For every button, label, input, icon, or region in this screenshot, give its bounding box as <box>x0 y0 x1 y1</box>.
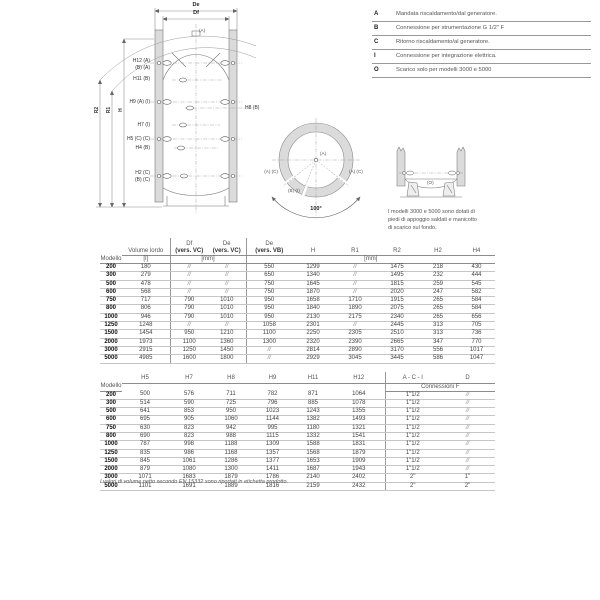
value-cell: 1909 <box>333 457 385 465</box>
value-cell: 590 <box>168 399 210 407</box>
value-cell: // <box>440 457 495 465</box>
model-cell: 600 <box>100 416 122 424</box>
value-cell: 1645 <box>292 280 334 288</box>
feet-note-line: piedi di appoggio saldati e manicotto <box>388 216 498 224</box>
datasheet-page: De Df (A) H12 (A) (B) (A) H11 (B) H9 (A)… <box>0 0 600 600</box>
value-cell: // <box>208 264 246 272</box>
col-header-de-vc: De(vers. VC) <box>208 238 246 256</box>
dimensions-table-1: Modello Volume lordo Df(vers. VC) De(ver… <box>100 238 495 364</box>
value-cell: 180 <box>122 264 170 272</box>
table-row: 3000291512501450//2814289031705561017 <box>100 346 495 354</box>
value-cell: 2" <box>440 482 495 490</box>
legend-text: Connessione per integrazione elettrica. <box>396 53 497 59</box>
value-cell: 1300 <box>210 466 252 474</box>
value-cell: 988 <box>210 432 252 440</box>
feet-note: I modelli 3000 e 5000 sono dotati di pie… <box>388 208 498 232</box>
value-cell: // <box>170 280 208 288</box>
label-h12: H12 (A) <box>133 58 150 64</box>
value-cell: 853 <box>168 408 210 416</box>
value-cell: 630 <box>122 424 168 432</box>
value-cell: 218 <box>418 264 458 272</box>
value-cell: 1100 <box>170 338 208 346</box>
value-cell: 1023 <box>252 408 293 416</box>
value-cell: 2402 <box>333 474 385 482</box>
value-cell: 1309 <box>252 441 293 449</box>
col-header-h5: H5 <box>122 372 168 383</box>
col-header-h8: H8 <box>210 372 252 383</box>
value-cell: 1"1/2 <box>385 449 440 457</box>
model-cell: 200 <box>100 391 122 399</box>
value-cell: 1360 <box>208 338 246 346</box>
table-row: 300279////6501340//1495232444 <box>100 272 495 280</box>
value-cell: 995 <box>252 424 293 432</box>
topview-label-left: (A) (C) <box>264 169 278 175</box>
value-cell: // <box>208 288 246 296</box>
value-cell: 1080 <box>168 466 210 474</box>
value-cell: // <box>440 391 495 399</box>
col-header-de-vb: De(vers. VB) <box>246 238 292 256</box>
value-cell: 1815 <box>376 280 418 288</box>
label-h2: H2 (C) <box>135 170 150 176</box>
label-h11: H11 (B) <box>133 76 150 82</box>
value-cell: 2890 <box>334 346 376 354</box>
value-cell: 1115 <box>252 432 293 440</box>
value-cell: 2075 <box>376 305 418 313</box>
table-footnote: I valori di volume netto secondo EN 1533… <box>100 479 288 485</box>
value-cell: 1943 <box>333 466 385 474</box>
value-cell: 1"1/2 <box>385 457 440 465</box>
value-cell: 871 <box>293 391 333 399</box>
value-cell: 584 <box>458 297 495 305</box>
table-row: 8006908239881115133215411"1/2// <box>100 432 495 440</box>
value-cell: 2175 <box>334 313 376 321</box>
dim-label-h: H <box>118 108 124 112</box>
legend-key: O <box>374 67 396 73</box>
model-cell: 1500 <box>100 457 122 465</box>
value-cell: 641 <box>122 408 168 416</box>
value-cell: 550 <box>246 264 292 272</box>
col-header-h12: H12 <box>333 372 385 383</box>
value-cell: // <box>440 466 495 474</box>
value-cell: 1047 <box>458 355 495 363</box>
col-header-r2: R2 <box>376 238 418 256</box>
value-cell: 1541 <box>333 432 385 440</box>
model-cell: 1250 <box>100 322 122 330</box>
topview-label-a: (A) <box>320 151 326 157</box>
legend-item: B Connessione per strumentazione G 1/2" … <box>372 22 591 36</box>
value-cell: 1010 <box>208 297 246 305</box>
table-row: 8008067901010950184018902075265584 <box>100 305 495 313</box>
value-cell: 1653 <box>293 457 333 465</box>
value-cell: 1600 <box>170 355 208 363</box>
value-cell: 1710 <box>334 297 376 305</box>
model-cell: 300 <box>100 272 122 280</box>
value-cell: 787 <box>122 441 168 449</box>
value-cell: 1495 <box>376 272 418 280</box>
col-header-h2: H2 <box>418 238 458 256</box>
label-h7: H7 (I) <box>138 122 151 128</box>
value-cell: 750 <box>246 280 292 288</box>
value-cell: // <box>440 416 495 424</box>
value-cell: // <box>170 322 208 330</box>
label-h5: H5 (C) (C) <box>127 136 150 142</box>
legend-key: B <box>374 25 396 31</box>
value-cell: 705 <box>458 322 495 330</box>
value-cell: 3045 <box>334 355 376 363</box>
value-cell: 1"1/2 <box>385 424 440 432</box>
value-cell: 2320 <box>292 338 334 346</box>
value-cell: 2159 <box>293 482 333 490</box>
value-cell: 1061 <box>168 457 210 465</box>
value-cell: // <box>170 288 208 296</box>
value-cell: 1332 <box>293 432 333 440</box>
value-cell: 232 <box>418 272 458 280</box>
value-cell: 1475 <box>376 264 418 272</box>
legend-text: Mandata riscaldamento/dal generatore. <box>396 11 497 17</box>
value-cell: // <box>334 264 376 272</box>
label-h12b: (B) (A) <box>135 65 150 71</box>
value-cell: // <box>208 272 246 280</box>
value-cell: // <box>246 346 292 354</box>
value-cell: 1"1/2 <box>385 432 440 440</box>
value-cell: 584 <box>458 305 495 313</box>
feet-note-line: di scarico sul fondo. <box>388 224 498 232</box>
value-cell: 845 <box>122 457 168 465</box>
value-cell: 950 <box>210 408 252 416</box>
value-cell: 1411 <box>252 466 293 474</box>
value-cell: 1"1/2 <box>385 416 440 424</box>
value-cell: 1493 <box>333 416 385 424</box>
value-cell: 1915 <box>376 297 418 305</box>
topview-label-bottom: (B) (I) <box>288 188 300 194</box>
unit-mm: [mm] <box>170 256 246 264</box>
model-cell: 2000 <box>100 338 122 346</box>
value-cell: 998 <box>168 441 210 449</box>
value-cell: 586 <box>418 355 458 363</box>
value-cell: 1250 <box>170 346 208 354</box>
col-header-d: D <box>440 372 495 383</box>
value-cell: 1870 <box>292 288 334 296</box>
model-cell: 750 <box>100 297 122 305</box>
value-cell: 545 <box>458 280 495 288</box>
connections-legend: A Mandata riscaldamento/dal generatore. … <box>372 8 591 78</box>
table-row: 100078799811881309158818311"1/2// <box>100 441 495 449</box>
value-cell: 1340 <box>292 272 334 280</box>
value-cell: 650 <box>246 272 292 280</box>
value-cell: // <box>208 280 246 288</box>
value-cell: 2" <box>385 474 440 482</box>
value-cell: 885 <box>293 399 333 407</box>
value-cell: 1890 <box>334 305 376 313</box>
legend-text: Scarico solo per modelli 3000 e 5000 <box>396 67 491 73</box>
value-cell: 823 <box>168 424 210 432</box>
value-cell: // <box>208 322 246 330</box>
col-header-modello: Modello <box>100 372 122 391</box>
value-cell: 1"1/2 <box>385 466 440 474</box>
model-cell: 1250 <box>100 449 122 457</box>
legend-text: Ritorno riscaldamento/al generatore. <box>396 39 490 45</box>
subheader-connessioni: Connessioni F <box>385 383 495 391</box>
model-cell: 600 <box>100 288 122 296</box>
dimensions-table-2: Modello H5 H7 H8 H9 H11 H12 A - C - I D … <box>100 372 495 491</box>
col-header-h7: H7 <box>168 372 210 383</box>
value-cell: 265 <box>418 305 458 313</box>
value-cell: 2305 <box>334 330 376 338</box>
table-row: 200180////5501299//1475218430 <box>100 264 495 272</box>
value-cell: 1800 <box>208 355 246 363</box>
value-cell: // <box>440 432 495 440</box>
value-cell: 1144 <box>252 416 293 424</box>
value-cell: 656 <box>458 313 495 321</box>
value-cell: 695 <box>122 416 168 424</box>
value-cell: 2" <box>385 482 440 490</box>
value-cell: 1010 <box>208 313 246 321</box>
table-row: 12501248////10582301//2445313705 <box>100 322 495 330</box>
value-cell: 2020 <box>376 288 418 296</box>
unit-liters: [l] <box>122 256 170 264</box>
value-cell: 1180 <box>293 424 333 432</box>
value-cell: 430 <box>458 264 495 272</box>
value-cell: 1321 <box>333 424 385 432</box>
value-cell: // <box>170 272 208 280</box>
value-cell: 950 <box>246 305 292 313</box>
legend-key: A <box>374 11 396 17</box>
value-cell: 1687 <box>293 466 333 474</box>
value-cell: 2140 <box>293 474 333 482</box>
model-cell: 500 <box>100 280 122 288</box>
model-cell: 1000 <box>100 313 122 321</box>
table-row: 20001973110013601300232023902665347770 <box>100 338 495 346</box>
label-o-drain: (O) <box>427 180 434 186</box>
value-cell: 2432 <box>333 482 385 490</box>
legend-item: C Ritorno riscaldamento/al generatore. <box>372 36 591 50</box>
dim-label-r1: R1 <box>106 107 112 113</box>
model-cell: 1500 <box>100 330 122 338</box>
value-cell: // <box>440 408 495 416</box>
value-cell: 725 <box>210 399 252 407</box>
value-cell: 950 <box>246 297 292 305</box>
table-row: 2000879108013001411168719431"1/2// <box>100 466 495 474</box>
value-cell: 347 <box>418 338 458 346</box>
value-cell: 259 <box>418 280 458 288</box>
value-cell: 313 <box>418 322 458 330</box>
value-cell: 750 <box>246 288 292 296</box>
value-cell: 265 <box>418 297 458 305</box>
value-cell: 1355 <box>333 408 385 416</box>
value-cell: 1058 <box>246 322 292 330</box>
col-header-aci: A - C - I <box>385 372 440 383</box>
table-row: 7507177901010950165817101915265584 <box>100 297 495 305</box>
value-cell: 950 <box>246 313 292 321</box>
value-cell: 582 <box>458 288 495 296</box>
value-cell: 2814 <box>292 346 334 354</box>
value-cell: // <box>440 424 495 432</box>
value-cell: 1568 <box>293 449 333 457</box>
value-cell: 444 <box>458 272 495 280</box>
value-cell: 1010 <box>208 305 246 313</box>
topview-label-right: (A) (C) <box>349 169 363 175</box>
model-cell: 5000 <box>100 355 122 363</box>
value-cell: 478 <box>122 280 170 288</box>
value-cell: 3445 <box>376 355 418 363</box>
value-cell: 2510 <box>376 330 418 338</box>
value-cell: // <box>440 399 495 407</box>
value-cell: 1831 <box>333 441 385 449</box>
value-cell: 1"1/2 <box>385 391 440 399</box>
value-cell: 313 <box>418 330 458 338</box>
dim-label-r2: R2 <box>94 107 100 113</box>
value-cell: 1973 <box>122 338 170 346</box>
value-cell: 1382 <box>293 416 333 424</box>
value-cell: // <box>334 272 376 280</box>
label-h2b: (B) (C) <box>135 177 150 183</box>
value-cell: 942 <box>210 424 252 432</box>
value-cell: // <box>334 288 376 296</box>
value-cell: 1064 <box>333 391 385 399</box>
value-cell: 1286 <box>210 457 252 465</box>
col-header-h9: H9 <box>252 372 293 383</box>
value-cell: 279 <box>122 272 170 280</box>
value-cell: 2340 <box>376 313 418 321</box>
value-cell: 736 <box>458 330 495 338</box>
value-cell: 823 <box>168 432 210 440</box>
value-cell: 770 <box>458 338 495 346</box>
table-row: 60069590510601144138214931"1/2// <box>100 416 495 424</box>
value-cell: // <box>440 449 495 457</box>
value-cell: 711 <box>210 391 252 399</box>
value-cell: 247 <box>418 288 458 296</box>
dim-label-de: De <box>192 2 199 8</box>
value-cell: // <box>334 322 376 330</box>
col-header-modello: Modello <box>100 238 122 264</box>
value-cell: 1188 <box>210 441 252 449</box>
col-header-h4: H4 <box>458 238 495 256</box>
value-cell: 946 <box>122 313 170 321</box>
value-cell: 576 <box>168 391 210 399</box>
value-cell: 568 <box>122 288 170 296</box>
col-header-h: H <box>292 238 334 256</box>
value-cell: 1450 <box>208 346 246 354</box>
value-cell: // <box>246 355 292 363</box>
col-header-volume: Volume lordo <box>122 238 170 256</box>
value-cell: 1" <box>440 474 495 482</box>
model-cell: 500 <box>100 408 122 416</box>
value-cell: // <box>170 264 208 272</box>
value-cell: 1658 <box>292 297 334 305</box>
value-cell: 1"1/2 <box>385 441 440 449</box>
value-cell: 1"1/2 <box>385 408 440 416</box>
table-row: 500478////7501645//1815259545 <box>100 280 495 288</box>
top-view-drawing <box>272 118 360 218</box>
feet-detail-drawing <box>397 147 465 197</box>
legend-item: O Scarico solo per modelli 3000 e 5000 <box>372 64 591 78</box>
value-cell: 2665 <box>376 338 418 346</box>
value-cell: 2390 <box>334 338 376 346</box>
value-cell: 1078 <box>333 399 385 407</box>
value-cell: // <box>334 280 376 288</box>
col-header-h11: H11 <box>293 372 333 383</box>
value-cell: 1879 <box>333 449 385 457</box>
value-cell: 2915 <box>122 346 170 354</box>
model-cell: 1000 <box>100 441 122 449</box>
col-header-df-vc: Df(vers. VC) <box>170 238 208 256</box>
table-row: 750630823942995118013211"1/2// <box>100 424 495 432</box>
model-cell: 2000 <box>100 466 122 474</box>
value-cell: 1100 <box>246 330 292 338</box>
value-cell: 1243 <box>293 408 333 416</box>
model-cell: 750 <box>100 424 122 432</box>
value-cell: 514 <box>122 399 168 407</box>
value-cell: 1454 <box>122 330 170 338</box>
value-cell: 2301 <box>292 322 334 330</box>
value-cell: 690 <box>122 432 168 440</box>
value-cell: 1168 <box>210 449 252 457</box>
model-cell: 300 <box>100 399 122 407</box>
table-row: 1500145495012101100225023052510313736 <box>100 330 495 338</box>
table-row: 10009467901010950213021752340265656 <box>100 313 495 321</box>
dim-label-df: Df <box>193 10 199 16</box>
value-cell: 2929 <box>292 355 334 363</box>
value-cell: 1017 <box>458 346 495 354</box>
table-row: 5006418539501023124313551"1/2// <box>100 408 495 416</box>
value-cell: 2250 <box>292 330 334 338</box>
angle-label: 100° <box>310 206 321 212</box>
value-cell: 835 <box>122 449 168 457</box>
value-cell: // <box>440 441 495 449</box>
value-cell: 1210 <box>208 330 246 338</box>
unit-mm: [mm] <box>246 256 495 264</box>
value-cell: 265 <box>418 313 458 321</box>
table-row: 125083598611681357156818791"1/2// <box>100 449 495 457</box>
label-h8: H8 (B) <box>245 105 259 111</box>
value-cell: 2445 <box>376 322 418 330</box>
value-cell: 1840 <box>292 305 334 313</box>
value-cell: 3170 <box>376 346 418 354</box>
legend-text: Connessione per strumentazione G 1/2" F <box>396 25 504 31</box>
value-cell: 1299 <box>292 264 334 272</box>
value-cell: 2130 <box>292 313 334 321</box>
value-cell: 1060 <box>210 416 252 424</box>
value-cell: 950 <box>170 330 208 338</box>
value-cell: 790 <box>170 313 208 321</box>
legend-item: A Mandata riscaldamento/dal generatore. <box>372 8 591 22</box>
value-cell: 1"1/2 <box>385 399 440 407</box>
value-cell: 556 <box>418 346 458 354</box>
legend-item: I Connessione per integrazione elettrica… <box>372 50 591 64</box>
model-cell: 800 <box>100 305 122 313</box>
value-cell: 4985 <box>122 355 170 363</box>
table-row: 20050057671178287110641"1/2// <box>100 391 495 399</box>
value-cell: 1300 <box>246 338 292 346</box>
value-cell: 790 <box>170 297 208 305</box>
model-cell: 200 <box>100 264 122 272</box>
label-h9: H9 (A) (I) <box>129 99 150 105</box>
legend-key: C <box>374 39 396 45</box>
value-cell: 1357 <box>252 449 293 457</box>
value-cell: 879 <box>122 466 168 474</box>
value-cell: 782 <box>252 391 293 399</box>
label-h4: H4 (B) <box>136 145 150 151</box>
table-row: 5000498516001800//2929304534455861047 <box>100 355 495 363</box>
value-cell: 1377 <box>252 457 293 465</box>
value-cell: 1588 <box>293 441 333 449</box>
feet-note-line: I modelli 3000 e 5000 sono dotati di <box>388 208 498 216</box>
value-cell: 500 <box>122 391 168 399</box>
legend-key: I <box>374 53 396 59</box>
col-header-r1: R1 <box>334 238 376 256</box>
value-cell: 717 <box>122 297 170 305</box>
model-cell: 800 <box>100 432 122 440</box>
